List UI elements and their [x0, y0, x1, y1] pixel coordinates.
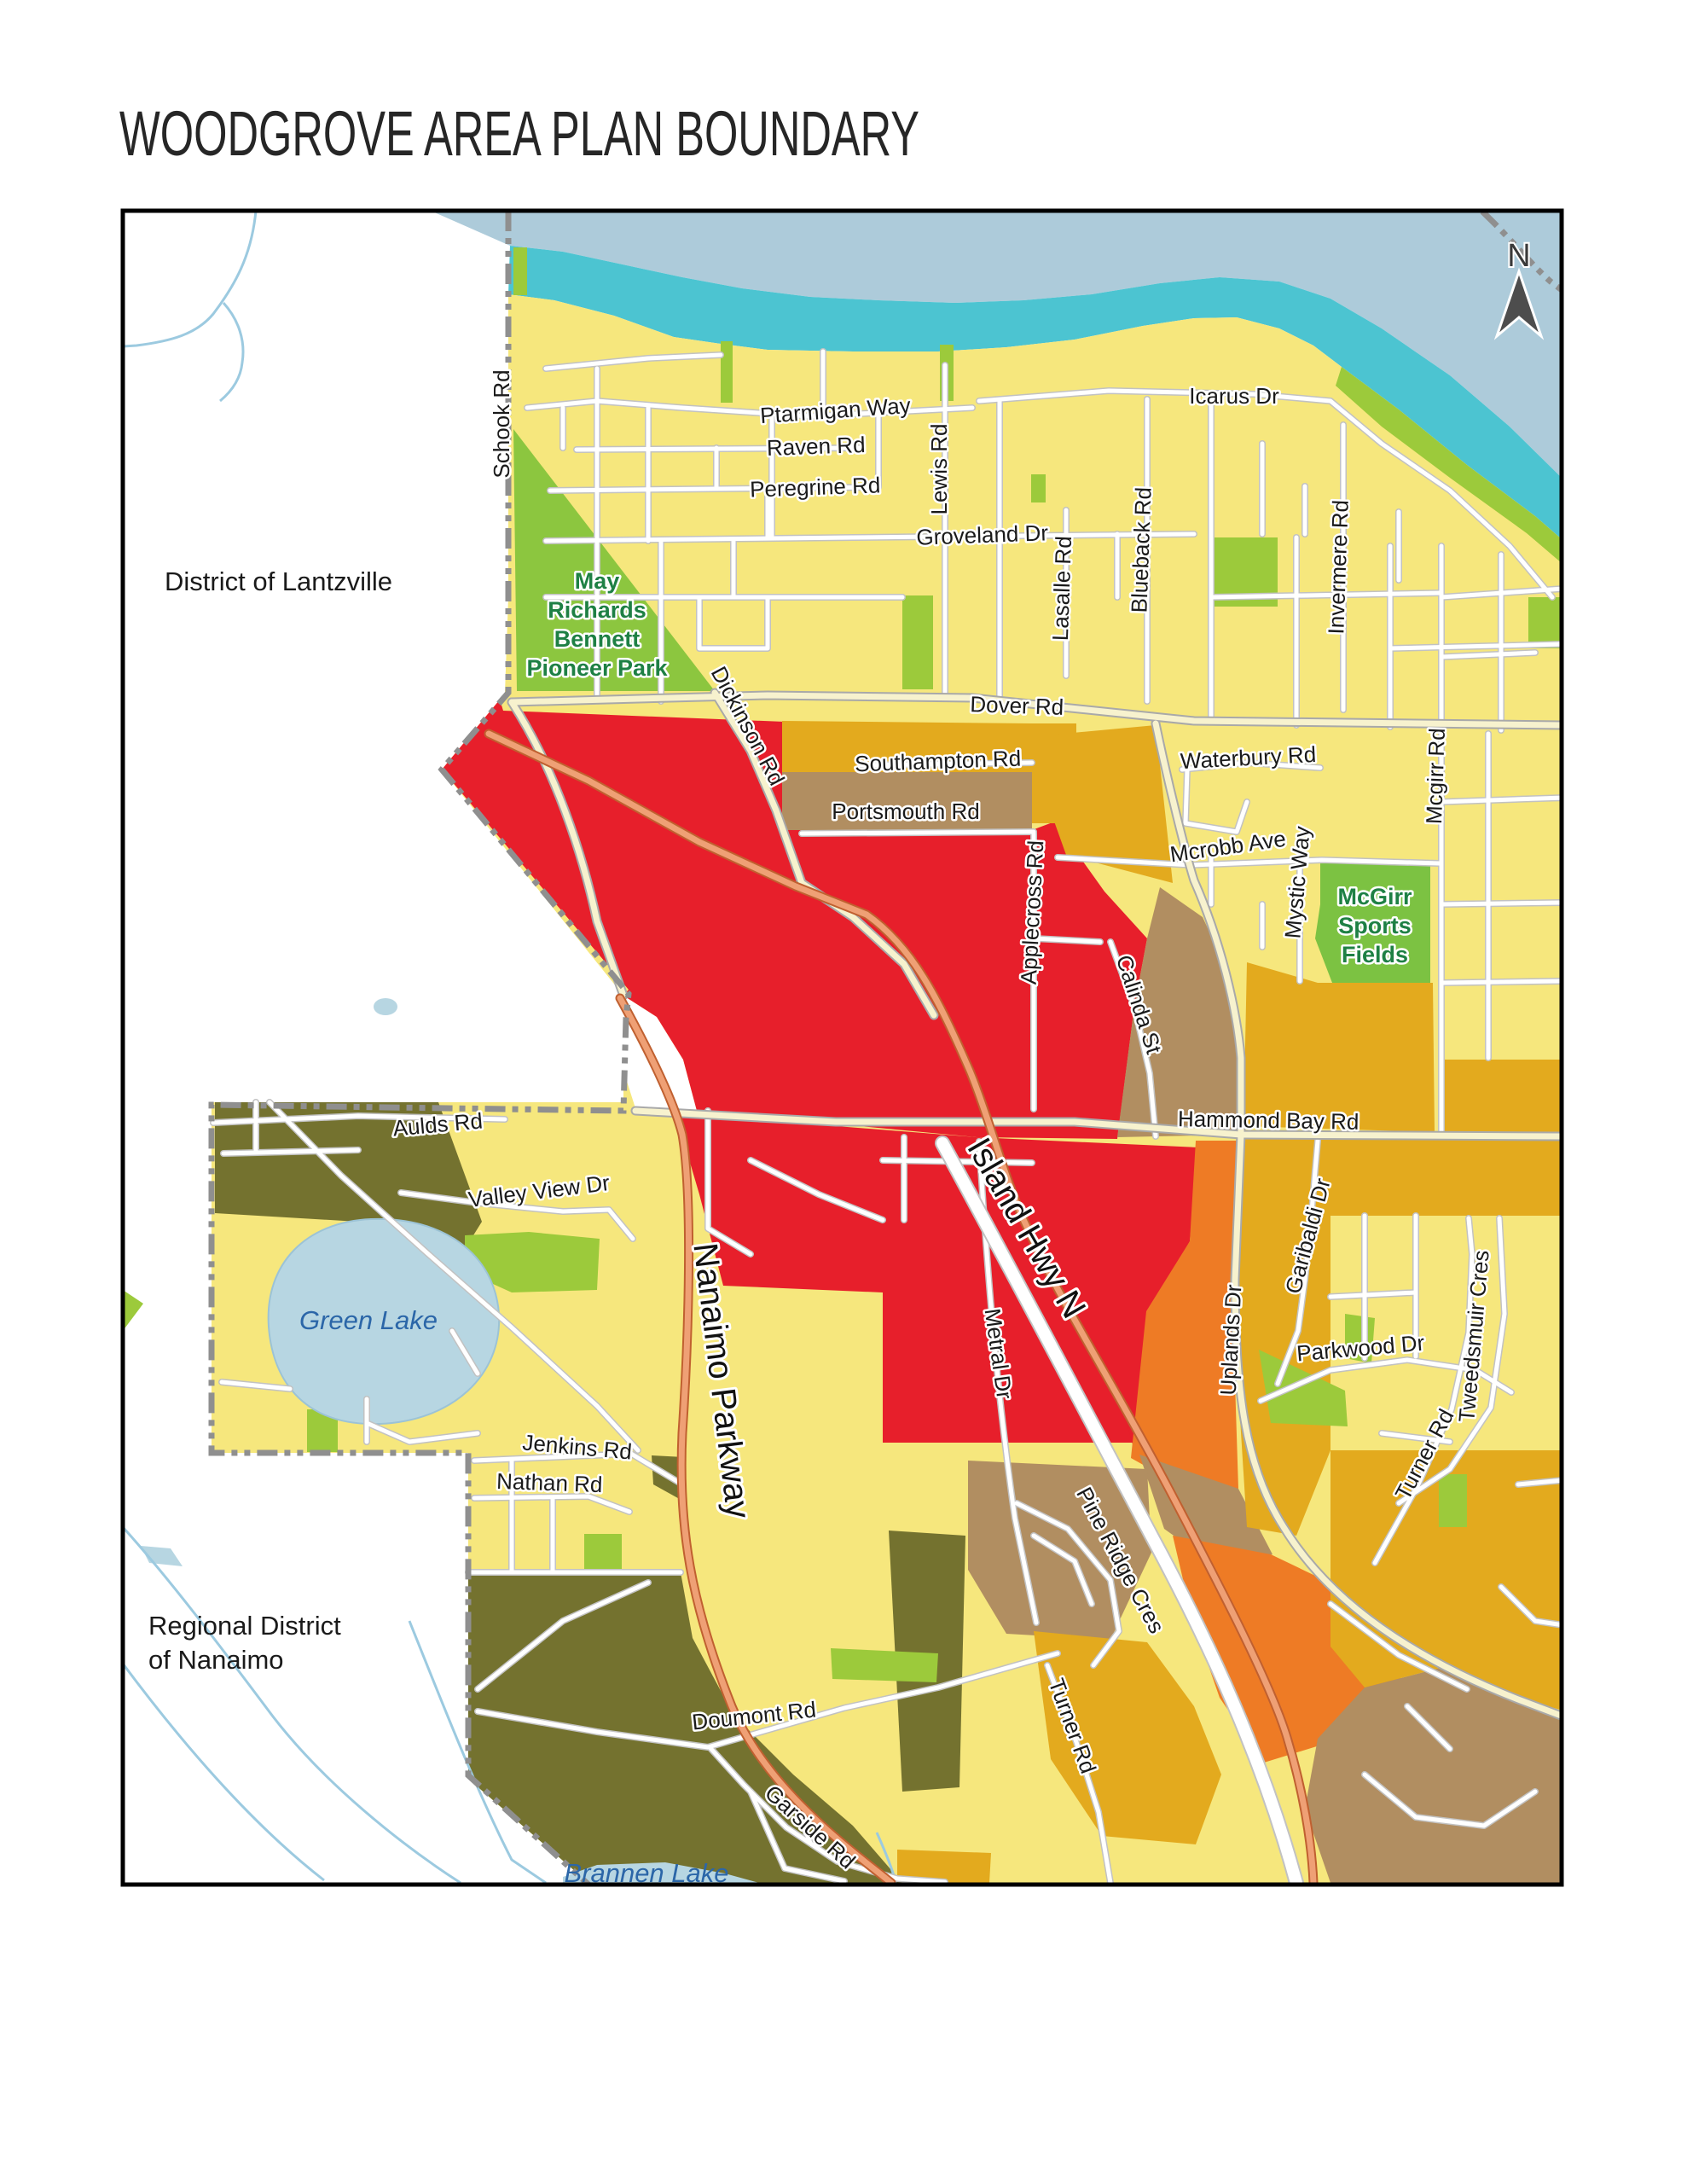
svg-text:Hammond Bay Rd: Hammond Bay Rd: [1178, 1106, 1359, 1135]
svg-text:Richards: Richards: [548, 597, 646, 623]
svg-text:of Nanaimo: of Nanaimo: [148, 1645, 284, 1675]
svg-text:District of Lantzville: District of Lantzville: [165, 566, 392, 596]
svg-text:Bennett: Bennett: [554, 626, 641, 652]
svg-text:Fields: Fields: [1342, 942, 1408, 967]
svg-text:Sports: Sports: [1338, 913, 1412, 938]
svg-text:Icarus Dr: Icarus Dr: [1189, 383, 1279, 409]
svg-text:Dover Rd: Dover Rd: [970, 691, 1064, 720]
svg-text:WOODGROVE AREA PLAN BOUNDARY: WOODGROVE AREA PLAN BOUNDARY: [119, 98, 919, 169]
svg-text:Portsmouth Rd: Portsmouth Rd: [832, 799, 979, 824]
svg-text:Raven Rd: Raven Rd: [766, 432, 866, 461]
svg-text:Nathan Rd: Nathan Rd: [496, 1468, 603, 1497]
svg-text:May: May: [575, 568, 620, 594]
svg-text:Peregrine Rd: Peregrine Rd: [750, 472, 881, 502]
svg-text:Pioneer Park: Pioneer Park: [526, 655, 668, 681]
svg-text:Regional District: Regional District: [148, 1611, 341, 1641]
svg-text:Lasalle Rd: Lasalle Rd: [1047, 536, 1076, 642]
svg-text:Blueback Rd: Blueback Rd: [1126, 486, 1156, 613]
svg-text:Mcgirr Rd: Mcgirr Rd: [1421, 728, 1450, 825]
svg-text:Lewis Rd: Lewis Rd: [926, 424, 952, 515]
svg-text:Schook Rd: Schook Rd: [489, 369, 514, 478]
svg-text:Invermere Rd: Invermere Rd: [1323, 499, 1353, 634]
svg-text:Groveland Dr: Groveland Dr: [916, 520, 1049, 549]
svg-text:McGirr: McGirr: [1337, 884, 1412, 909]
svg-text:Green Lake: Green Lake: [299, 1305, 438, 1335]
